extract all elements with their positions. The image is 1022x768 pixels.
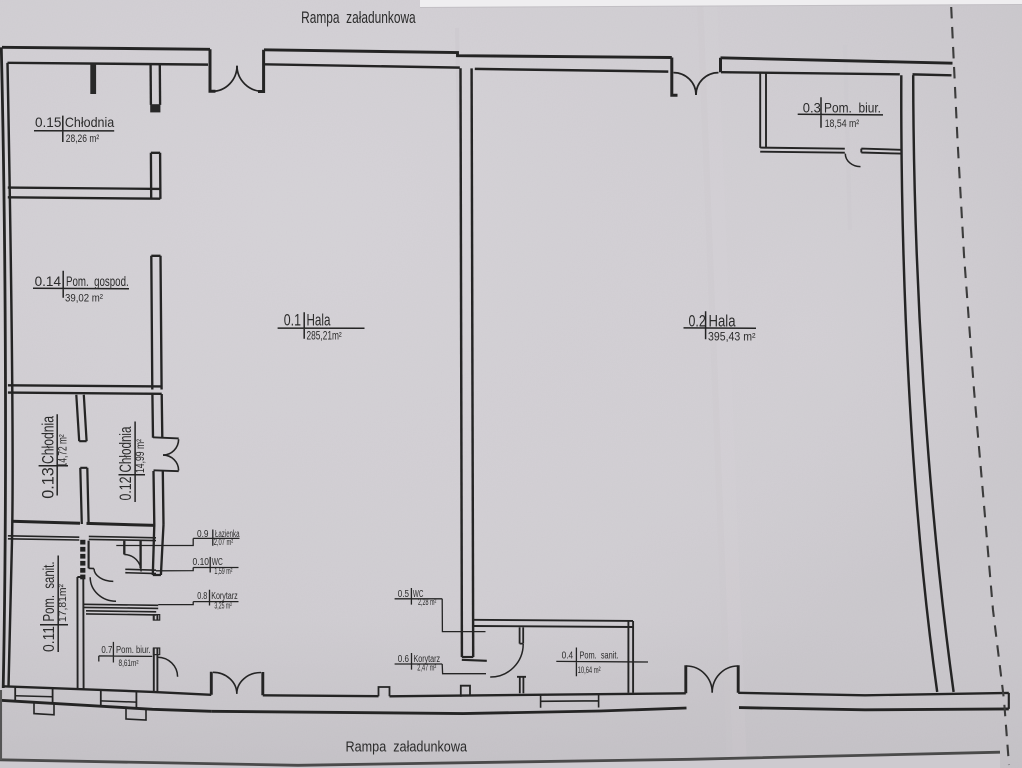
svg-text:0.15: 0.15 [35,114,62,130]
svg-text:Pom. biur.: Pom. biur. [116,645,151,656]
svg-text:1,59 m²: 1,59 m² [214,566,232,576]
svg-text:0.5: 0.5 [398,589,410,600]
svg-text:8,61m²: 8,61m² [119,658,139,668]
svg-text:0.11: 0.11 [41,626,58,652]
svg-text:Pom. gospod.: Pom. gospod. [66,273,129,289]
svg-text:Hala: Hala [709,312,737,330]
svg-text:Pom. sanit.: Pom. sanit. [41,562,58,622]
svg-text:Pom. biur.: Pom. biur. [824,100,881,116]
svg-text:0.12: 0.12 [117,477,135,501]
svg-text:395,43 m²: 395,43 m² [708,330,756,343]
svg-text:10,64 m²: 10,64 m² [578,665,601,675]
svg-text:18,54 m²: 18,54 m² [825,118,860,130]
svg-text:0.13: 0.13 [40,467,58,499]
svg-text:28,26 m²: 28,26 m² [66,133,100,145]
svg-text:2,47 m²: 2,47 m² [417,663,436,673]
svg-text:0.9: 0.9 [197,529,209,540]
svg-text:0.6: 0.6 [398,654,410,665]
svg-text:39,02 m²: 39,02 m² [65,293,103,305]
svg-text:0.4: 0.4 [562,651,574,662]
svg-text:0.7: 0.7 [101,645,112,656]
svg-text:Hala: Hala [307,311,332,329]
svg-text:Chłodnia: Chłodnia [117,426,135,473]
svg-text:Rampa załadunkowa: Rampa załadunkowa [346,738,468,755]
svg-text:0.1: 0.1 [284,311,301,329]
svg-text:0.8: 0.8 [197,591,207,602]
svg-text:2,07 m²: 2,07 m² [214,537,234,547]
svg-text:Rampa załadunkowa: Rampa załadunkowa [301,8,416,27]
svg-text:Chłodnia: Chłodnia [40,415,58,464]
svg-text:Pom. sanit.: Pom. sanit. [580,651,619,662]
svg-text:14,72 m²: 14,72 m² [58,434,70,467]
svg-text:0.14: 0.14 [35,273,62,289]
svg-text:2,28 m²: 2,28 m² [418,597,436,607]
svg-text:Chłodnia: Chłodnia [65,114,114,130]
svg-text:3,25 m²: 3,25 m² [214,601,232,611]
svg-text:14,99 m²: 14,99 m² [135,439,147,473]
svg-text:0.3: 0.3 [803,100,821,116]
svg-text:17,81m²: 17,81m² [57,584,69,622]
svg-text:285,21m²: 285,21m² [307,329,342,342]
svg-text:0.10: 0.10 [193,557,210,568]
svg-text:0.2: 0.2 [689,312,706,330]
